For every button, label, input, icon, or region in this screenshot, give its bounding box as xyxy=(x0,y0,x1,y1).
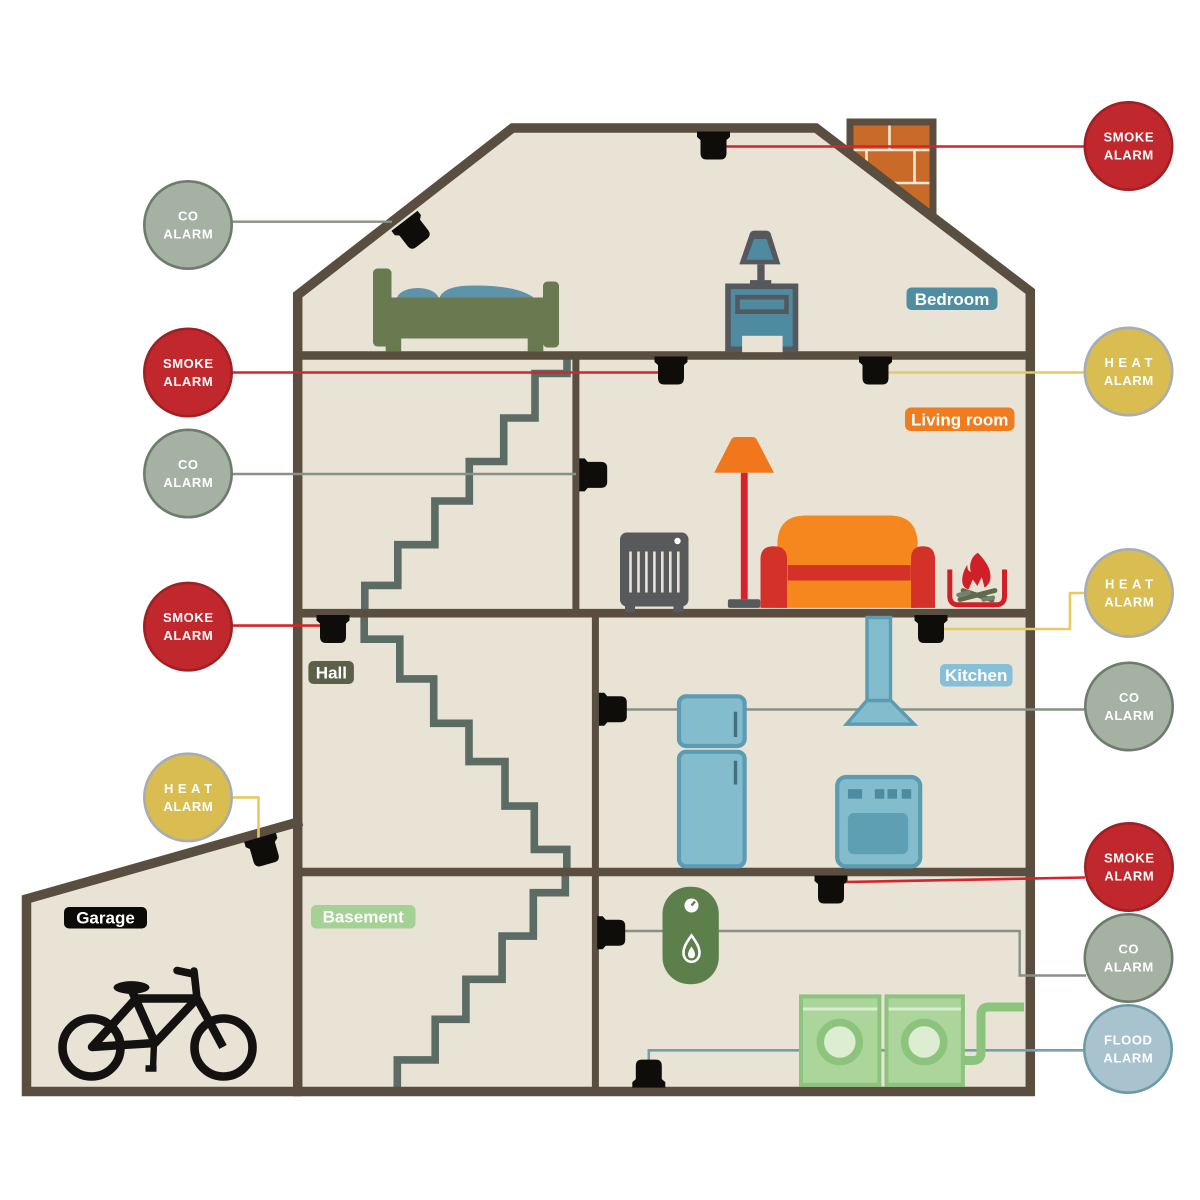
svg-text:ALARM: ALARM xyxy=(1104,708,1154,723)
svg-text:HEAT: HEAT xyxy=(1105,577,1157,592)
svg-text:HEAT: HEAT xyxy=(164,781,216,796)
svg-text:ALARM: ALARM xyxy=(1104,869,1154,884)
svg-text:Basement: Basement xyxy=(323,908,405,927)
svg-text:Living room: Living room xyxy=(911,411,1008,430)
svg-text:ALARM: ALARM xyxy=(163,799,213,814)
svg-text:CO: CO xyxy=(1119,690,1140,705)
svg-text:FLOOD: FLOOD xyxy=(1104,1033,1153,1048)
svg-text:ALARM: ALARM xyxy=(1104,373,1154,388)
svg-text:CO: CO xyxy=(178,457,199,472)
svg-text:ALARM: ALARM xyxy=(1103,1051,1153,1066)
svg-text:CO: CO xyxy=(1118,942,1139,957)
svg-text:Kitchen: Kitchen xyxy=(945,666,1007,685)
svg-text:Hall: Hall xyxy=(316,664,347,683)
svg-text:ALARM: ALARM xyxy=(1104,595,1154,610)
svg-text:ALARM: ALARM xyxy=(1104,148,1154,163)
svg-text:HEAT: HEAT xyxy=(1104,355,1156,370)
svg-text:SMOKE: SMOKE xyxy=(1104,851,1155,866)
svg-text:ALARM: ALARM xyxy=(163,475,213,490)
svg-text:SMOKE: SMOKE xyxy=(163,610,214,625)
svg-text:ALARM: ALARM xyxy=(163,628,213,643)
svg-text:SMOKE: SMOKE xyxy=(163,356,214,371)
svg-text:ALARM: ALARM xyxy=(163,374,213,389)
svg-text:ALARM: ALARM xyxy=(1104,960,1154,975)
svg-text:CO: CO xyxy=(178,209,199,224)
svg-text:ALARM: ALARM xyxy=(163,227,213,242)
svg-text:Garage: Garage xyxy=(76,909,135,928)
svg-text:SMOKE: SMOKE xyxy=(1103,130,1154,145)
svg-text:Bedroom: Bedroom xyxy=(915,290,990,309)
